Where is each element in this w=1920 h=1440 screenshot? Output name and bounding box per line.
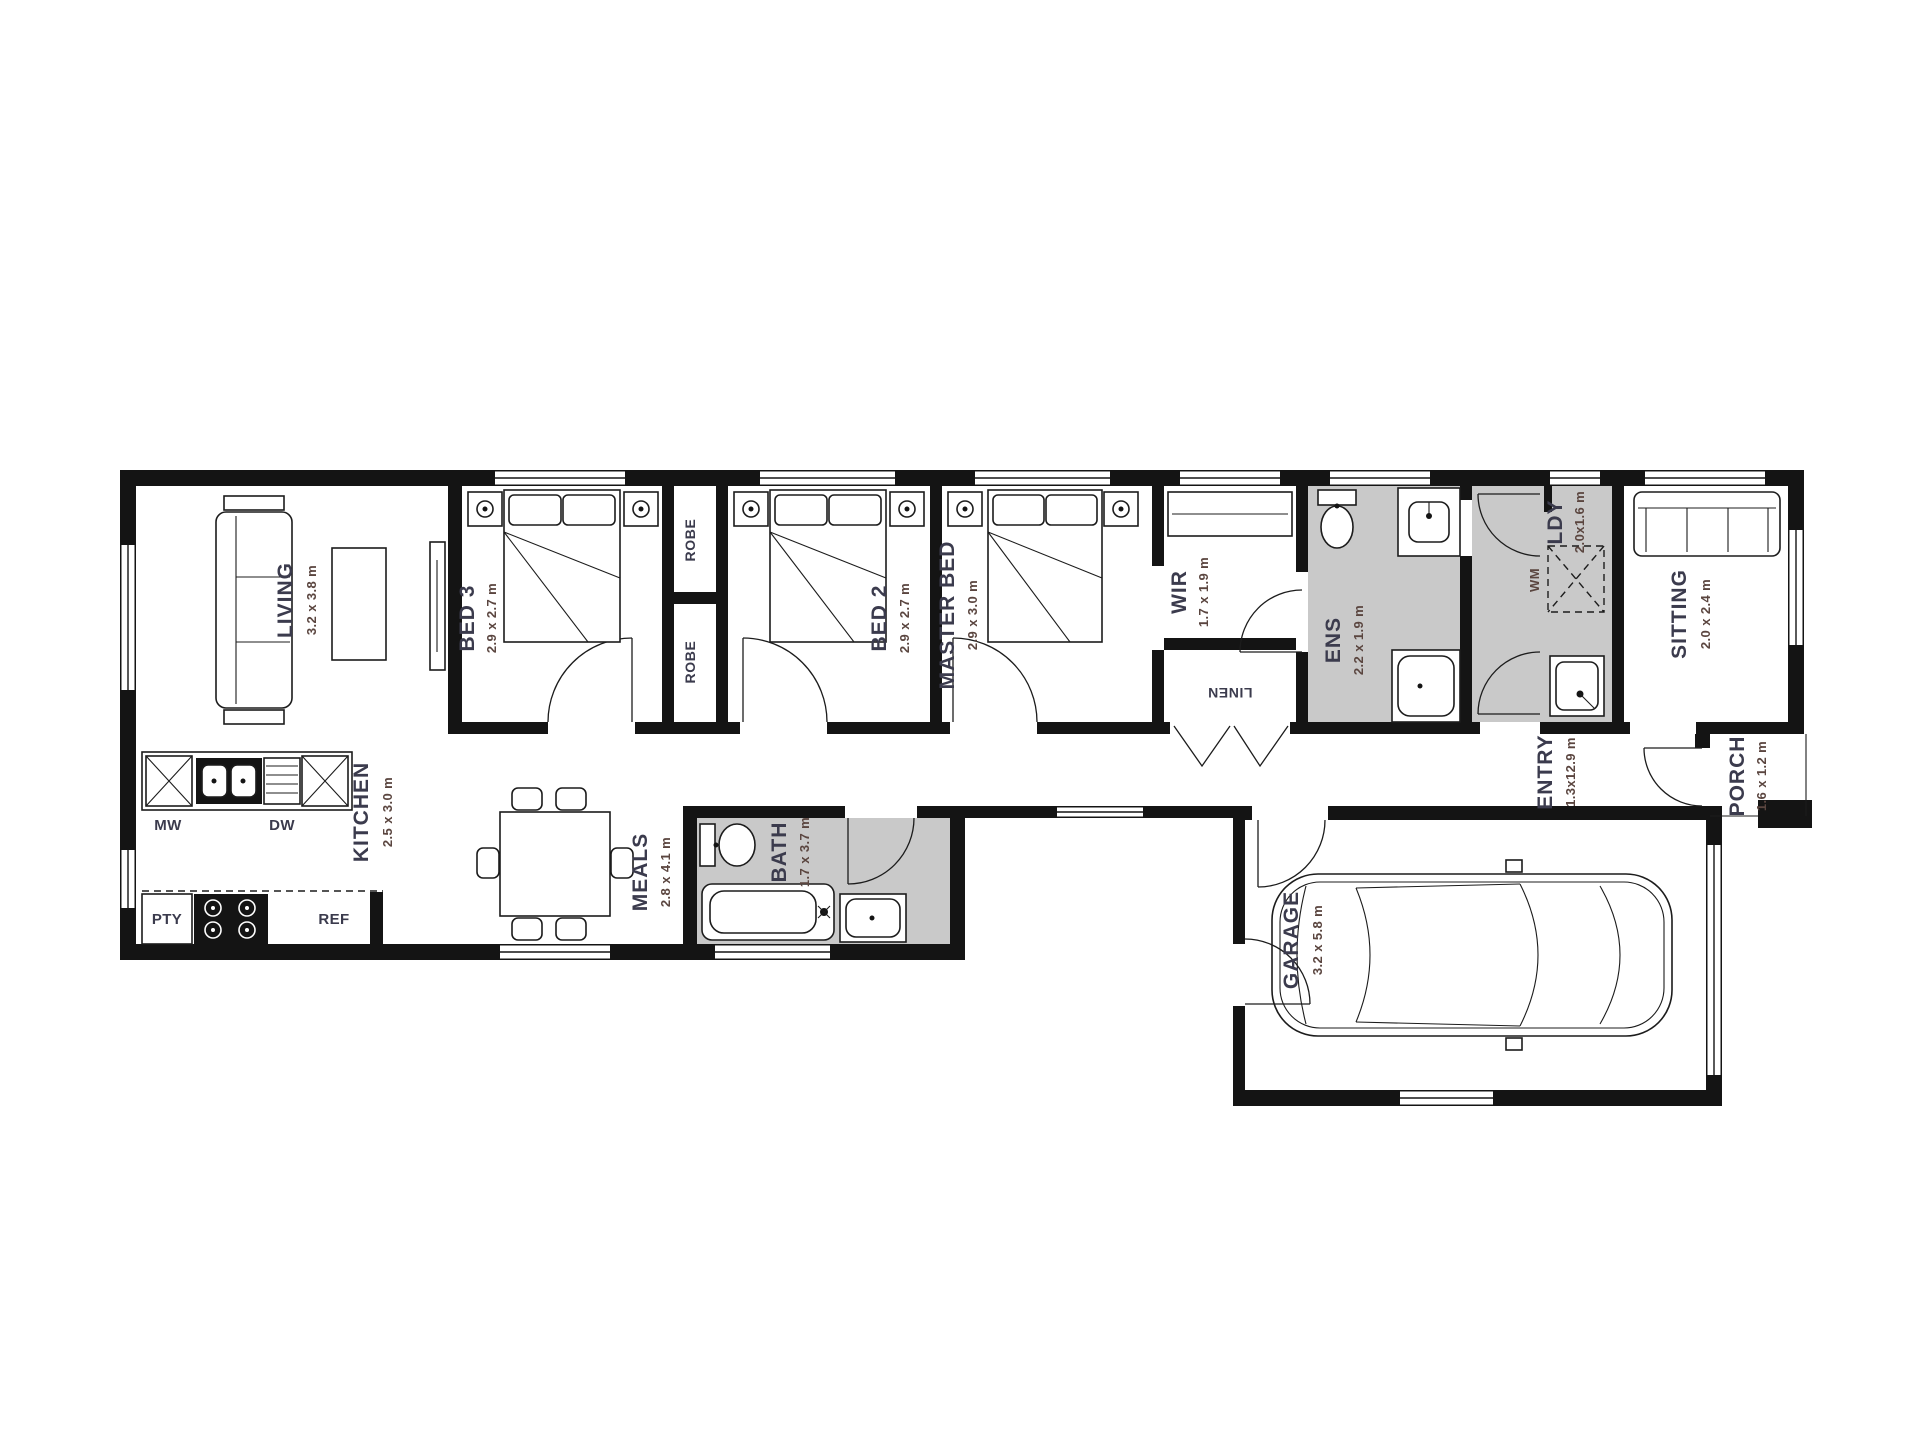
- room-dims-bed2: 2.9 x 2.7 m: [897, 583, 912, 653]
- downlight-icon: [1104, 492, 1138, 526]
- cooktop-icon: [194, 894, 268, 944]
- room-dims-meals: 2.8 x 4.1 m: [658, 837, 673, 907]
- appliance-label-dw: DW: [269, 817, 295, 834]
- ens-toilet-icon: [1318, 490, 1356, 548]
- bed3-bed: [504, 490, 620, 642]
- laundry-tub-icon: [1550, 656, 1604, 716]
- room-label-entry: ENTRY: [1534, 734, 1557, 809]
- room-dims-ens: 2.2 x 1.9 m: [1351, 605, 1366, 675]
- room-label-wir: WIR: [1168, 570, 1191, 614]
- room-label-ldy: LDY: [1544, 500, 1567, 545]
- bath-toilet-icon: [700, 824, 755, 866]
- sitting-sofa: [1634, 492, 1780, 556]
- downlight-icon: [468, 492, 502, 526]
- room-label-porch: PORCH: [1726, 736, 1749, 817]
- room-label-living: LIVING: [274, 562, 297, 638]
- room-label-linen: LINEN: [1208, 685, 1253, 701]
- room-dims-garage: 3.2 x 5.8 m: [1310, 905, 1325, 975]
- kitchen-sink-icon: [196, 758, 262, 804]
- room-dims-entry: 1.3x12.9 m: [1563, 737, 1578, 807]
- room-label-ens: ENS: [1322, 617, 1345, 663]
- dining-table-set: [477, 788, 633, 940]
- room-dims-ldy: 2.0x1.6 m: [1572, 491, 1587, 553]
- appliance-label-wm: WM: [1527, 568, 1542, 592]
- tv-unit: [430, 542, 445, 670]
- room-label-bed3: BED 3: [456, 585, 479, 652]
- room-label-robe-top: ROBE: [682, 519, 698, 562]
- room-label-kitchen: KITCHEN: [350, 762, 373, 862]
- floor-plan-page: LIVING 3.2 x 3.8 m BED 3 2.9 x 2.7 m ROB…: [0, 0, 1920, 1440]
- coffee-table: [332, 548, 386, 660]
- room-label-bath: BATH: [768, 822, 791, 883]
- room-dims-master-bed: 2.9 x 3.0 m: [965, 580, 980, 650]
- appliance-label-mw: MW: [154, 817, 182, 834]
- car: [1272, 860, 1672, 1050]
- appliance-label-pty: PTY: [152, 911, 182, 928]
- wir-shelves: [1168, 492, 1292, 536]
- room-label-bed2: BED 2: [868, 585, 891, 652]
- dishwasher-icon: [264, 758, 300, 804]
- room-label-garage: GARAGE: [1280, 891, 1303, 989]
- room-label-meals: MEALS: [629, 833, 652, 912]
- ens-vanity-icon: [1398, 488, 1460, 556]
- room-dims-living: 3.2 x 3.8 m: [304, 565, 319, 635]
- room-dims-bed3: 2.9 x 2.7 m: [484, 583, 499, 653]
- room-dims-kitchen: 2.5 x 3.0 m: [380, 777, 395, 847]
- master-bed-bed: [988, 490, 1102, 642]
- downlight-icon: [624, 492, 658, 526]
- ens-shower-icon: [1392, 650, 1460, 722]
- appliance-label-ref: REF: [318, 911, 349, 928]
- room-label-master-bed: MASTER BED: [936, 541, 959, 690]
- room-dims-sitting: 2.0 x 2.4 m: [1698, 579, 1713, 649]
- floor-plan-drawing: LIVING 3.2 x 3.8 m BED 3 2.9 x 2.7 m ROB…: [0, 0, 1920, 1440]
- downlight-icon: [890, 492, 924, 526]
- room-dims-bath: 1.7 x 3.7 m: [797, 817, 812, 887]
- bathtub-icon: [702, 884, 834, 940]
- room-label-robe-bottom: ROBE: [682, 641, 698, 684]
- kitchen-island-bench: [142, 752, 352, 810]
- downlight-icon: [734, 492, 768, 526]
- room-dims-porch: 1.6 x 1.2 m: [1754, 741, 1769, 811]
- room-dims-wir: 1.7 x 1.9 m: [1196, 557, 1211, 627]
- bath-shower-icon: [840, 894, 906, 942]
- room-label-sitting: SITTING: [1668, 569, 1691, 659]
- downlight-icon: [948, 492, 982, 526]
